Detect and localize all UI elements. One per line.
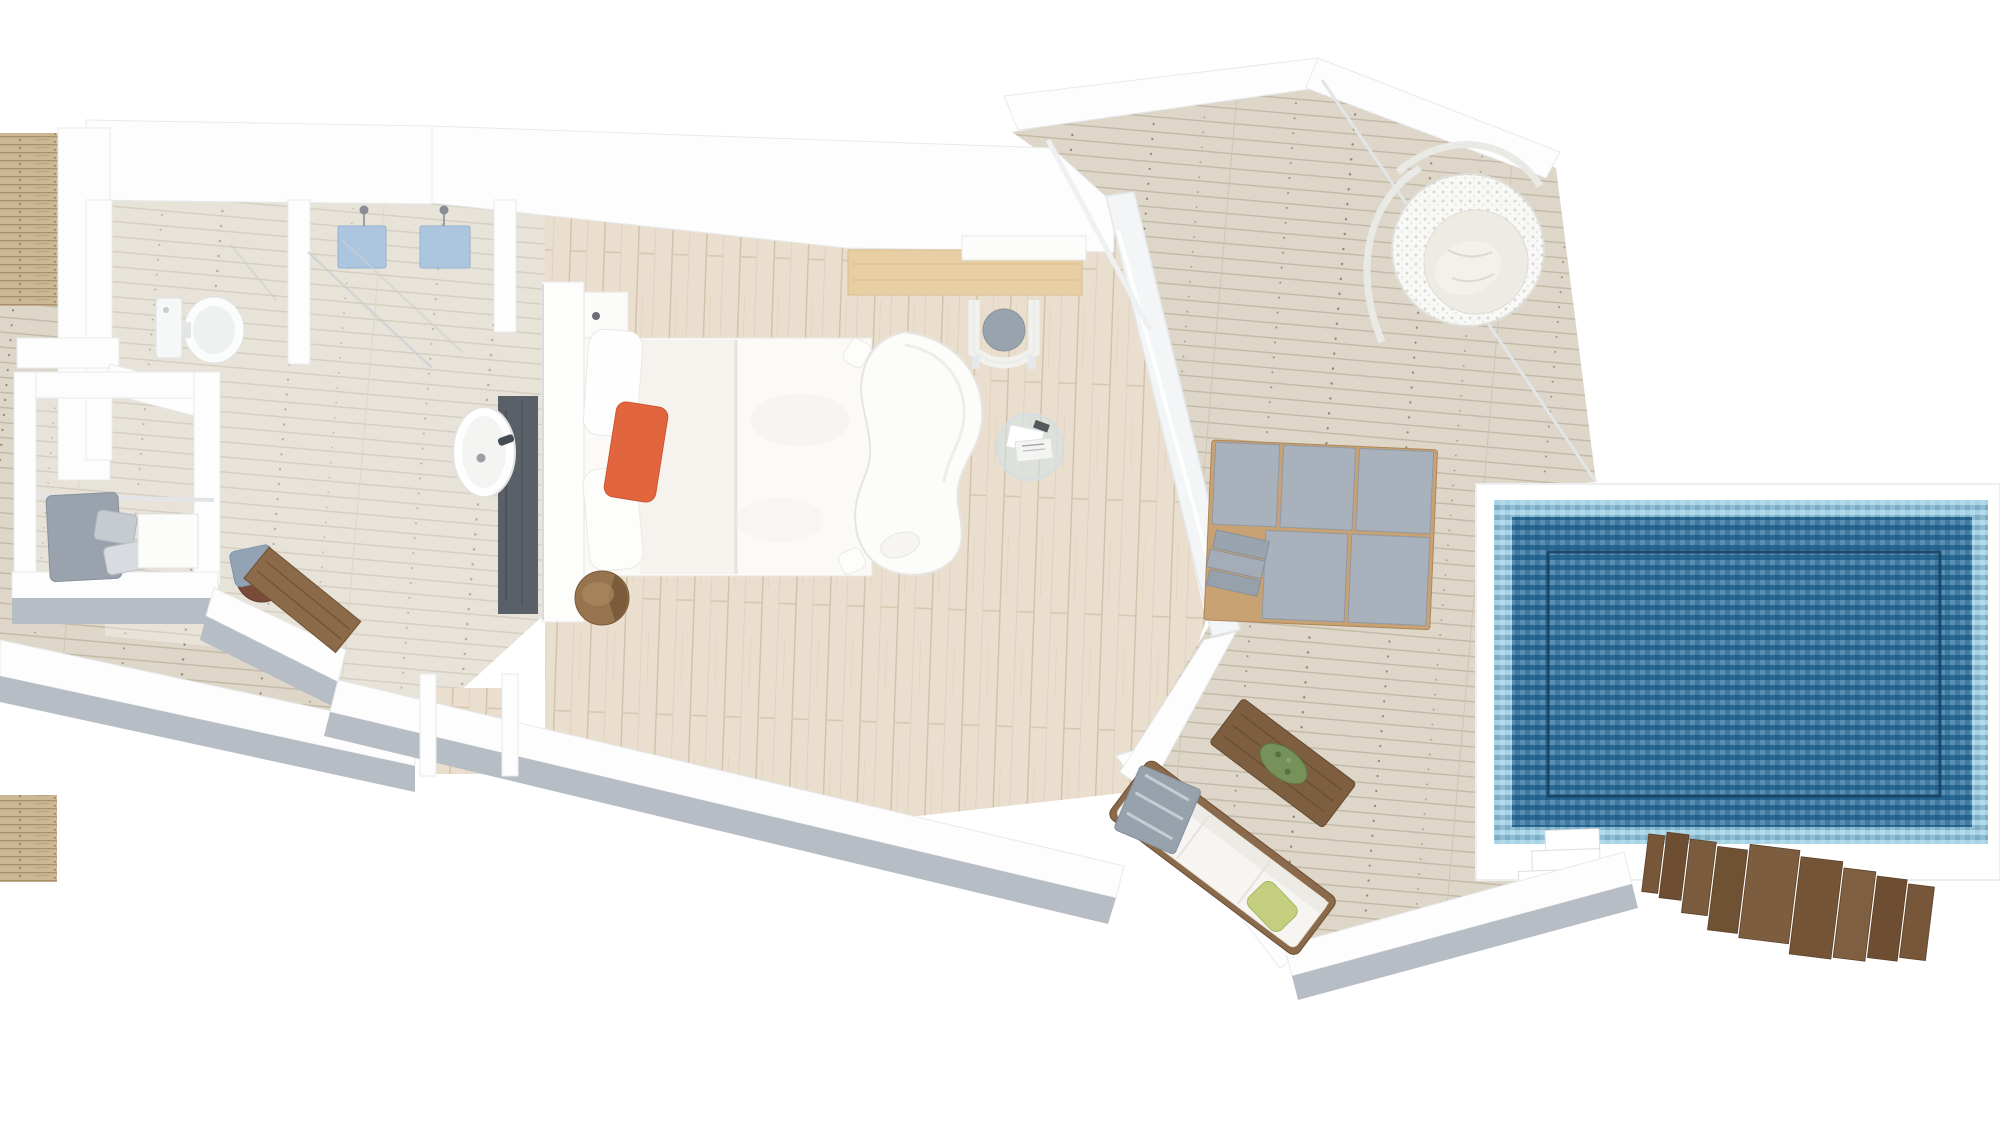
king-bed — [582, 328, 873, 576]
daybed — [1201, 440, 1438, 630]
glass-table — [997, 414, 1063, 480]
closet-table — [138, 514, 198, 568]
shower-tray-right — [420, 226, 470, 268]
desk-chair-cushion — [983, 309, 1025, 351]
nightstand-knob — [592, 312, 600, 320]
shower-tray-left — [338, 226, 386, 268]
closet-pillow-1 — [93, 509, 137, 545]
wc-bottom-wall — [17, 338, 119, 368]
log-stool — [575, 571, 629, 625]
pool-basin-mosaic — [1512, 517, 1972, 827]
shower-head-left — [360, 206, 369, 215]
closet-bottom-wall-face — [12, 598, 218, 624]
bottom-left-wood-step — [0, 795, 57, 882]
entry-niche-left-wall — [420, 674, 436, 776]
shower-partition-right — [494, 200, 516, 332]
wc-left-wall — [86, 200, 112, 460]
pool-terrace — [1476, 484, 2000, 893]
shower-partition-left — [288, 200, 310, 364]
shower-head-right — [440, 206, 449, 215]
entry-niche-right-wall — [502, 674, 518, 776]
floorplan-svg — [0, 0, 2000, 1125]
closet-top-wall — [16, 372, 220, 398]
exterior-wood-wall — [0, 133, 62, 307]
floorplan-canvas — [0, 0, 2000, 1125]
toilet — [156, 297, 244, 363]
closet-left-wall — [14, 372, 36, 586]
bathroom-top-wall — [86, 120, 432, 204]
desk-wall-shelf — [962, 236, 1086, 260]
sink-drain — [477, 454, 486, 463]
headboard-wall — [542, 282, 584, 622]
